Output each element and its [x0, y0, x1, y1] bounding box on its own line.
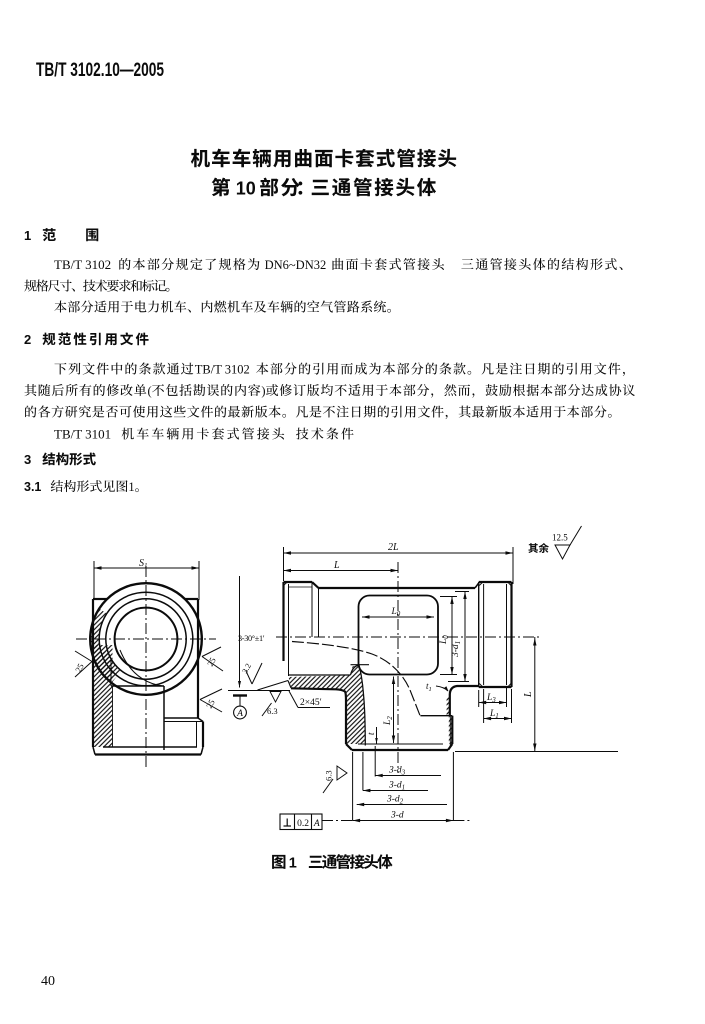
svg-text:t1: t1: [426, 681, 432, 693]
svg-text:TB/T 3102: TB/T 3102: [195, 363, 250, 377]
svg-text:L1: L1: [489, 709, 499, 720]
svg-text:2: 2: [24, 332, 31, 347]
svg-text:2L: 2L: [388, 542, 399, 553]
svg-text:L: L: [523, 691, 534, 698]
svg-text:A: A: [313, 819, 320, 829]
svg-text:3-d3: 3-d3: [388, 766, 406, 777]
svg-text:3-d: 3-d: [390, 811, 404, 821]
svg-text:10: 10: [236, 179, 256, 199]
svg-text:t: t: [366, 732, 376, 735]
svg-text:3: 3: [24, 452, 31, 467]
svg-text:3-d2: 3-d2: [386, 795, 404, 806]
svg-text:3-d1: 3-d1: [388, 781, 405, 792]
svg-text:12.5: 12.5: [552, 533, 568, 543]
svg-text:DN6~DN32: DN6~DN32: [265, 258, 327, 272]
svg-text:1: 1: [128, 480, 134, 494]
svg-text:3-d1: 3-d1: [451, 641, 462, 658]
svg-text:TB/T 3102.10—2005: TB/T 3102.10—2005: [36, 59, 164, 81]
svg-text:6.3: 6.3: [324, 770, 334, 781]
svg-text:25: 25: [73, 662, 86, 674]
svg-text:L0: L0: [391, 607, 401, 618]
svg-text:1: 1: [24, 228, 31, 243]
svg-text:6.3: 6.3: [267, 706, 278, 716]
svg-text:3-30°±1′: 3-30°±1′: [238, 634, 265, 643]
svg-text:L0: L0: [439, 635, 450, 645]
svg-text:0.2: 0.2: [297, 819, 309, 829]
svg-text:2×45′: 2×45′: [300, 698, 322, 708]
svg-text:40: 40: [41, 974, 55, 989]
svg-text:): ): [261, 384, 265, 398]
svg-text:TB/T 3101: TB/T 3101: [54, 427, 111, 442]
svg-text:3.2: 3.2: [240, 662, 253, 675]
svg-text:L2: L2: [383, 716, 394, 726]
svg-text:L: L: [333, 560, 340, 571]
svg-text:3.1: 3.1: [24, 480, 41, 494]
svg-text:A: A: [236, 709, 243, 719]
svg-text:(: (: [148, 384, 152, 398]
svg-text:TB/T 3102: TB/T 3102: [54, 257, 111, 272]
svg-text:L3: L3: [486, 693, 496, 704]
svg-text:1: 1: [289, 856, 297, 872]
